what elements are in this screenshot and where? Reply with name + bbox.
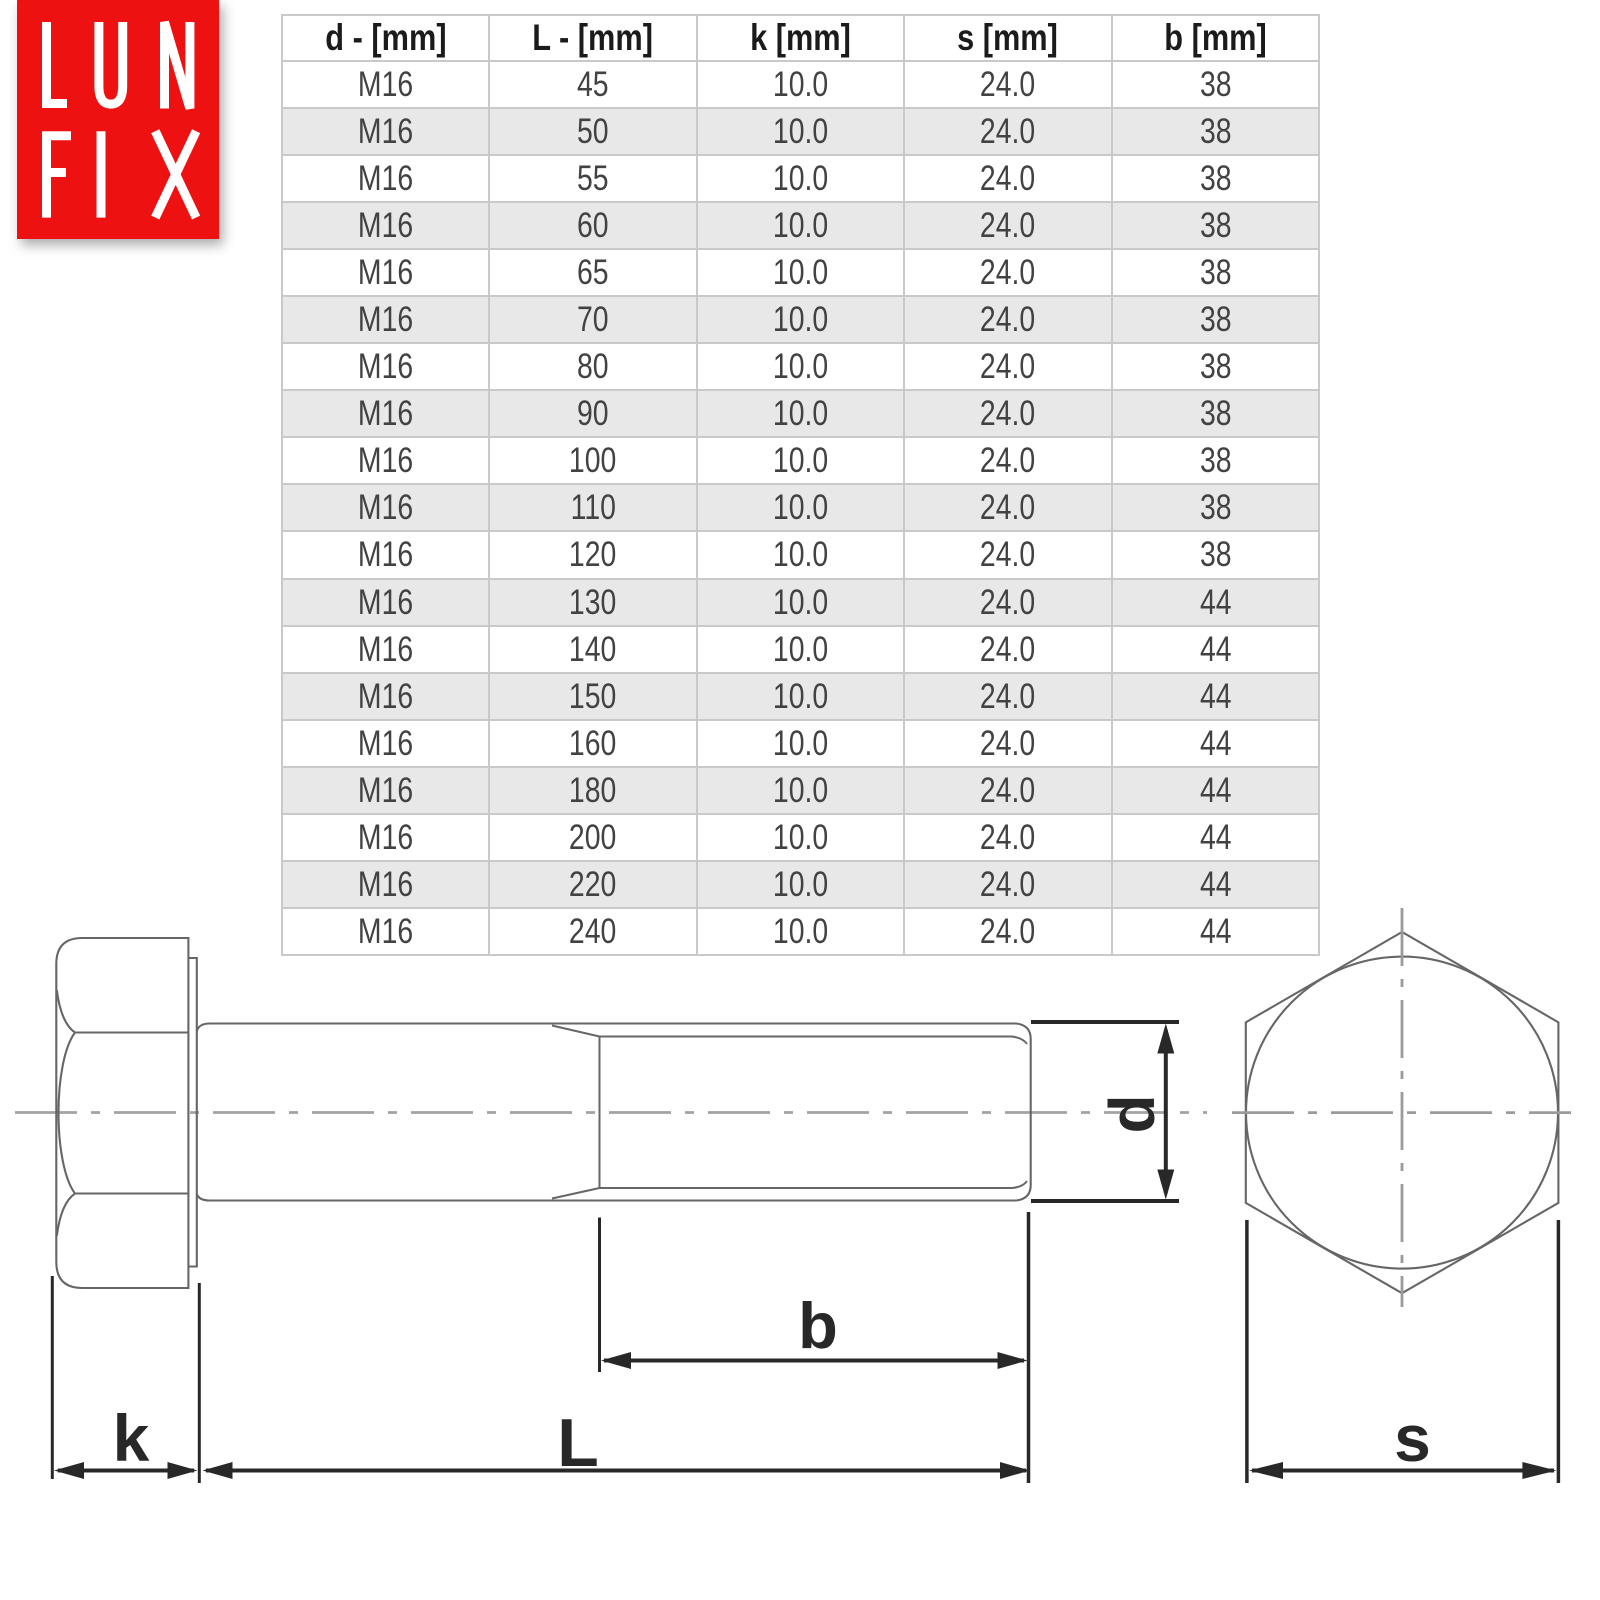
svg-text:L: L (557, 1405, 599, 1481)
svg-text:d: d (1096, 1094, 1168, 1133)
svg-text:k: k (113, 1401, 150, 1475)
svg-text:b: b (798, 1289, 838, 1362)
svg-text:s: s (1394, 1401, 1431, 1475)
